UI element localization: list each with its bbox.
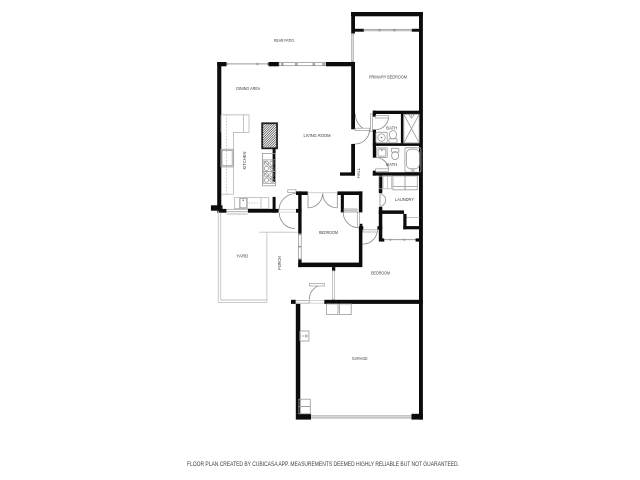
svg-text:YARD: YARD [236, 254, 249, 259]
svg-text:LIVING ROOM: LIVING ROOM [304, 133, 331, 138]
svg-text:BEDROOM: BEDROOM [319, 230, 338, 235]
svg-text:DINING AREA: DINING AREA [236, 86, 261, 91]
svg-text:BATH: BATH [386, 126, 397, 131]
svg-text:PORCH: PORCH [277, 256, 282, 270]
svg-text:PRIMARY BEDROOM: PRIMARY BEDROOM [369, 75, 407, 80]
svg-text:REAR PATIO: REAR PATIO [274, 38, 294, 43]
svg-text:HALL: HALL [356, 168, 361, 178]
svg-text:GARAGE: GARAGE [352, 356, 368, 361]
svg-text:KITCHEN: KITCHEN [242, 151, 247, 169]
svg-text:FLOOR PLAN CREATED BY CUBICASA: FLOOR PLAN CREATED BY CUBICASA APP. MEAS… [187, 461, 459, 468]
svg-text:LAUNDRY: LAUNDRY [395, 197, 414, 202]
svg-text:BEDROOM: BEDROOM [371, 271, 390, 276]
svg-text:BATH: BATH [386, 162, 397, 167]
